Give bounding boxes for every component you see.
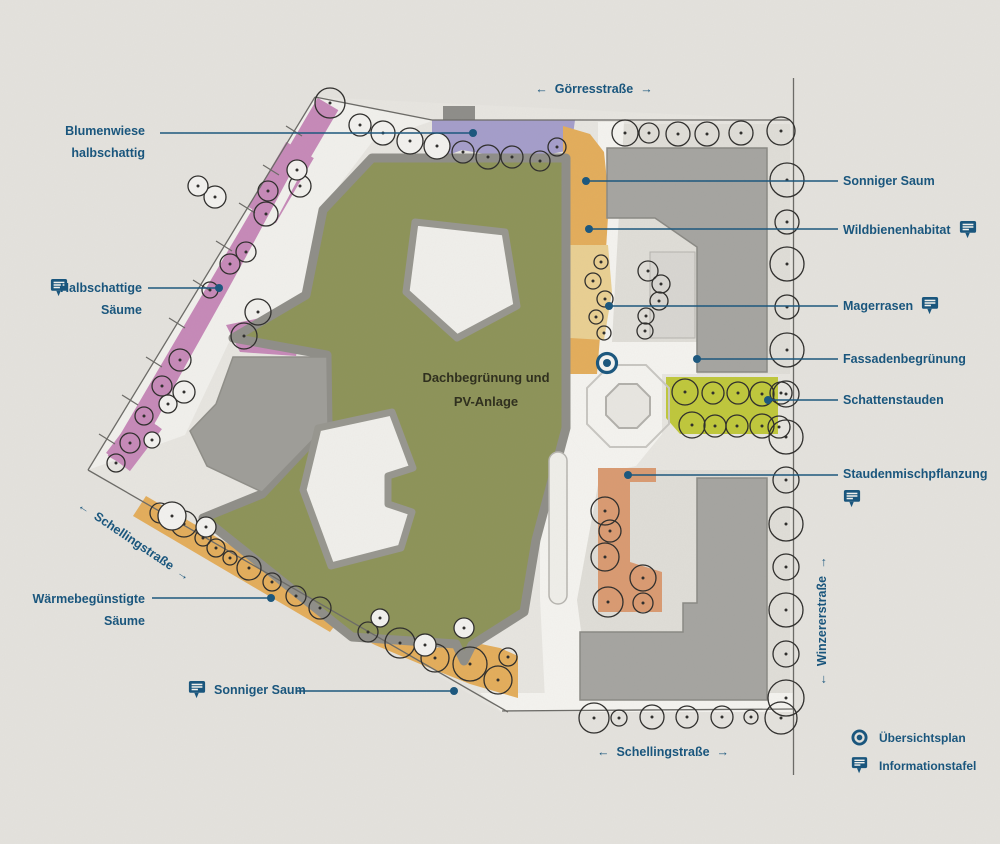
- paper-grain: [0, 0, 1000, 844]
- info-board-icon: [851, 756, 868, 776]
- info-board-icon: [921, 296, 939, 317]
- annotation-sonniger-saum-unten: Sonniger Saum: [188, 680, 306, 701]
- annotation-staudenmischpflanzung: Staudenmischpflanzung: [843, 467, 987, 482]
- overview-target-icon: [851, 729, 868, 746]
- arrow-right: →: [815, 556, 829, 569]
- annotation-halbschattige-saeume: Halbschattige Säume: [22, 277, 142, 321]
- arrow-right: →: [717, 745, 730, 759]
- annotation-waermebeguenstigte-saeume: Wärmebegünstigte Säume: [15, 588, 145, 632]
- annotation-schattenstauden: Schattenstauden: [843, 393, 944, 408]
- legend-uebersichtsplan: Übersichtsplan: [851, 729, 966, 746]
- annotation-blumenwiese: Blumenwiese halbschattig: [35, 120, 145, 164]
- annotation-magerrasen: Magerrasen: [843, 296, 939, 317]
- street-goerresstrasse: ←Görresstraße→: [494, 82, 694, 96]
- annotation-dachbegruenung: Dachbegrünung und PV-Anlage: [386, 366, 586, 414]
- info-board-icon: [188, 680, 206, 701]
- annotation-wildbienenhabitat: Wildbienenhabitat: [843, 220, 977, 241]
- street-winzererstrasse: ←Winzererstraße→: [815, 521, 829, 721]
- annotation-fassadenbegruenung: Fassadenbegrünung: [843, 352, 966, 367]
- street-schellingstrasse-sued: ←Schellingstraße→: [563, 745, 763, 759]
- info-board-icon: [959, 220, 977, 241]
- annotation-sonniger-saum-oben: Sonniger Saum: [843, 174, 935, 189]
- arrow-left: ←: [535, 82, 548, 96]
- arrow-left: ←: [597, 745, 610, 759]
- arrow-left: ←: [815, 673, 829, 686]
- legend-informationstafel: Informationstafel: [851, 756, 976, 776]
- arrow-right: →: [640, 82, 653, 96]
- site-plan: ←Görresstraße→ ←Schellingstraße→ ←Schell…: [0, 0, 1000, 844]
- site-plan-drawing: [0, 0, 1000, 844]
- info-board-icon: [843, 489, 861, 510]
